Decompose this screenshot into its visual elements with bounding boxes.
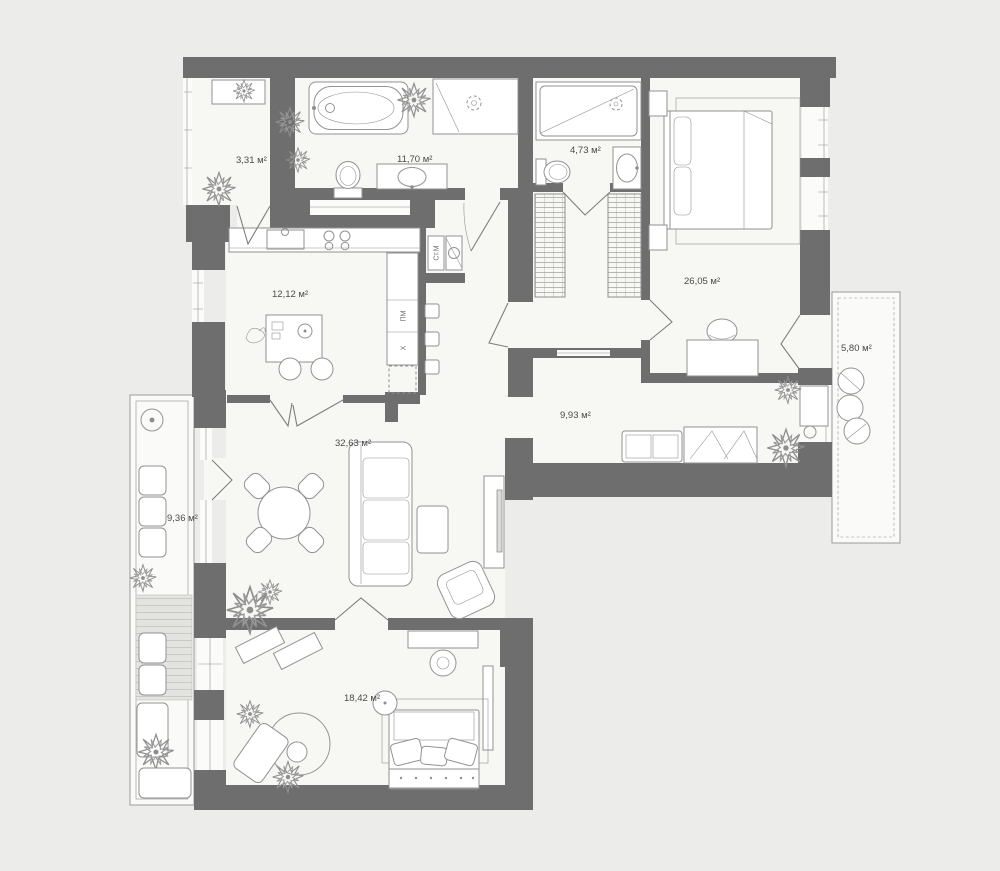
- floor-plan-page: ПМ Х Ст.М: [0, 0, 1000, 871]
- label-utility: 3,31 м²: [236, 155, 267, 166]
- cushion: [139, 665, 166, 695]
- door-gap: [508, 302, 533, 348]
- door-gap: [465, 188, 500, 228]
- wall-right: [800, 78, 830, 107]
- cushion: [139, 768, 191, 798]
- wall-hall-bottom: [533, 463, 832, 497]
- label-living-room: 32,63 м²: [335, 438, 371, 449]
- pouf: [838, 368, 864, 394]
- coffee-table: [417, 506, 448, 553]
- cushion: [139, 497, 166, 526]
- door-gap: [465, 273, 508, 283]
- wall-center: [508, 188, 533, 302]
- dishwasher-label: ПМ: [401, 310, 408, 321]
- bar-stool: [311, 358, 333, 380]
- label-master-bedroom: 26,05 м²: [684, 276, 720, 287]
- tv-unit: [484, 476, 504, 568]
- bed: [382, 699, 488, 789]
- wall-right: [800, 158, 830, 177]
- cushion: [139, 528, 166, 557]
- desk-chair: [707, 319, 737, 343]
- label-shower-room: 4,73 м²: [570, 145, 601, 156]
- wall-left-pier: [186, 205, 230, 242]
- door-gap: [800, 315, 832, 373]
- door-gap: [641, 300, 650, 340]
- floor-plan-drawing: ПМ Х Ст.М: [0, 0, 1000, 871]
- label-balcony-left: 9,36 м²: [167, 513, 198, 524]
- wall-utility-bathroom: [270, 78, 295, 188]
- wall-kitchen-living-corner: [385, 404, 398, 422]
- wall-niche-side: [410, 200, 420, 228]
- toilet: [334, 162, 362, 199]
- shower-tray: [536, 82, 641, 140]
- sofa: [349, 442, 412, 586]
- wall-kitchen-living: [343, 395, 385, 403]
- hall-bench: [622, 431, 682, 462]
- washer-label: Ст.М: [434, 245, 441, 260]
- side-table: [287, 742, 307, 762]
- wardrobe: [608, 194, 641, 297]
- cushion: [139, 633, 166, 663]
- door-gap: [563, 183, 610, 192]
- wall-left: [192, 322, 225, 397]
- label-balcony-right: 5,80 м²: [841, 343, 872, 354]
- wall-right: [800, 230, 830, 315]
- wall-vestibule: [420, 273, 465, 283]
- wall-kitchen-living: [227, 395, 270, 403]
- window-utility: [183, 78, 192, 205]
- shelf-box: [425, 304, 439, 318]
- cushion: [139, 466, 166, 495]
- bar-stool: [279, 358, 301, 380]
- wall-living-bedroom: [388, 618, 505, 630]
- label-kitchen: 12,12 м²: [272, 289, 308, 300]
- wall-hall-right: [798, 368, 832, 385]
- door-gap: [335, 618, 388, 630]
- wall-left-pier: [194, 390, 226, 428]
- toilet: [536, 159, 570, 185]
- shelf-box: [425, 332, 439, 346]
- pillow: [420, 746, 447, 766]
- wall-left-pier: [194, 690, 224, 720]
- wall-center-upper: [518, 57, 533, 188]
- wall-center: [508, 348, 533, 397]
- headboard: [389, 769, 479, 788]
- kitchen-niche: [310, 200, 410, 215]
- wall-center: [505, 438, 533, 500]
- vanity-sink: [377, 164, 447, 189]
- wall-bottom: [194, 785, 533, 810]
- washbasin: [613, 147, 641, 189]
- nightstand: [649, 225, 667, 250]
- wall-bathroom-bottom: [500, 188, 518, 200]
- wall-bedroom-right: [505, 667, 533, 785]
- bathroom-counter: [433, 79, 518, 134]
- door-gap: [204, 458, 226, 500]
- nightstand: [649, 91, 667, 116]
- wardrobe: [535, 194, 565, 297]
- kitchen-counter: [229, 228, 420, 252]
- label-bedroom: 18,42 м²: [344, 693, 380, 704]
- bathtub: [309, 82, 408, 134]
- wall-left-pier: [194, 563, 226, 638]
- desk-chair: [430, 650, 456, 676]
- label-hallway: 9,93 м²: [560, 410, 591, 421]
- wall-kitchen-living-corner: [385, 392, 420, 404]
- shelf-box: [425, 360, 439, 374]
- wall-top: [183, 57, 836, 78]
- wall-hall-right: [798, 442, 832, 463]
- tv-screen: [497, 490, 502, 552]
- bed: [664, 111, 772, 229]
- label-bathroom: 11,70 м²: [397, 154, 432, 165]
- fridge-label: Х: [401, 345, 408, 350]
- wall-left: [192, 242, 225, 270]
- hall-living-passage-floor: [505, 397, 533, 438]
- pouf: [837, 395, 863, 421]
- shoe-cabinet: [684, 427, 757, 463]
- wall-master-west: [641, 340, 650, 373]
